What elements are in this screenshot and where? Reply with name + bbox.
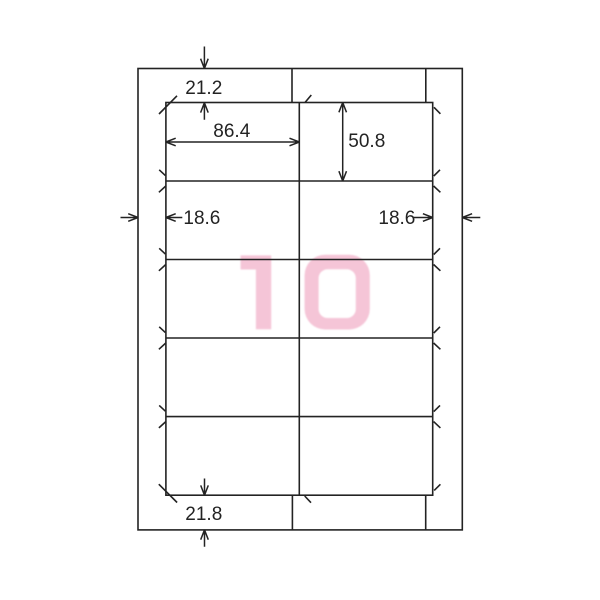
svg-text:18.6: 18.6	[378, 208, 415, 229]
svg-text:86.4: 86.4	[213, 121, 250, 142]
svg-text:21.2: 21.2	[185, 78, 222, 99]
svg-text:21.8: 21.8	[185, 504, 222, 525]
svg-text:50.8: 50.8	[348, 131, 385, 152]
svg-text:18.6: 18.6	[183, 208, 220, 229]
